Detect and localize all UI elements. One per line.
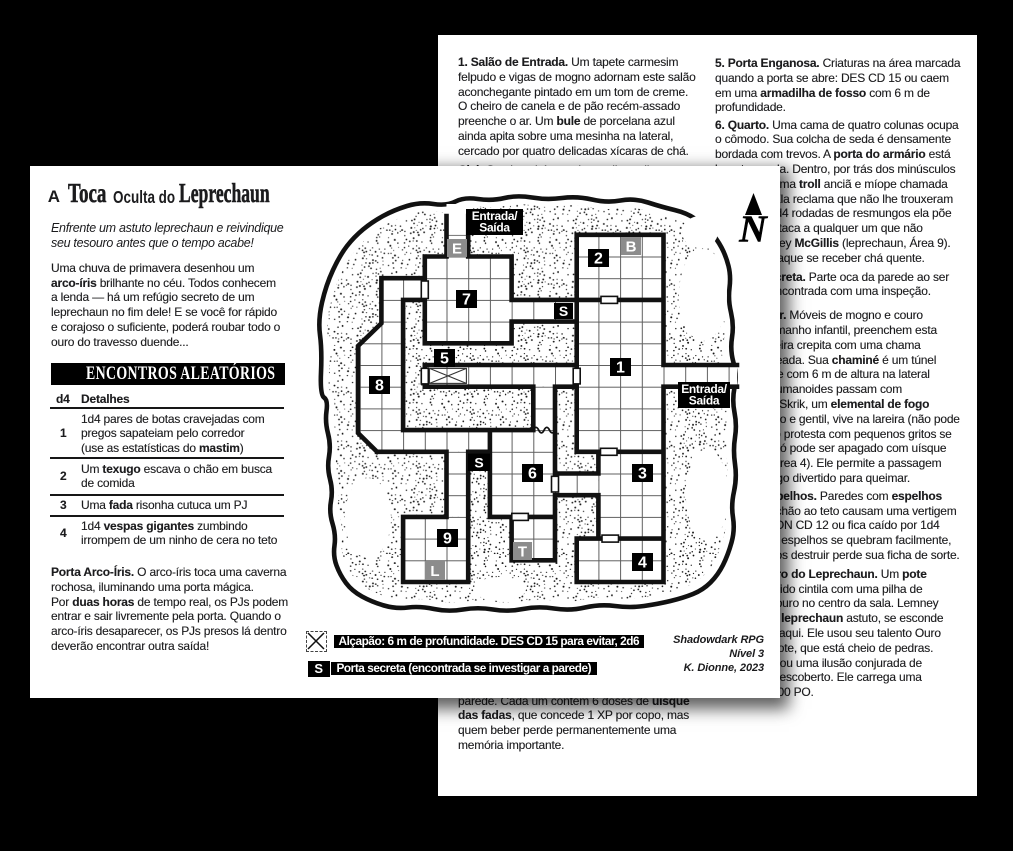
svg-text:S: S xyxy=(474,454,483,470)
svg-text:6: 6 xyxy=(528,466,537,483)
svg-text:8: 8 xyxy=(375,378,384,395)
svg-text:4: 4 xyxy=(638,555,647,572)
svg-text:L: L xyxy=(430,563,439,580)
svg-text:Saída: Saída xyxy=(689,394,720,408)
svg-text:2: 2 xyxy=(594,251,603,268)
svg-text:3: 3 xyxy=(638,466,647,483)
svg-text:N: N xyxy=(738,209,768,251)
svg-text:B: B xyxy=(626,238,637,255)
svg-text:S: S xyxy=(559,303,568,319)
svg-text:E: E xyxy=(452,240,462,257)
svg-text:9: 9 xyxy=(443,531,452,548)
svg-text:Saída: Saída xyxy=(479,221,510,235)
svg-text:1: 1 xyxy=(616,360,625,377)
svg-text:T: T xyxy=(518,543,527,560)
svg-text:7: 7 xyxy=(462,292,471,309)
svg-text:5: 5 xyxy=(440,351,449,368)
